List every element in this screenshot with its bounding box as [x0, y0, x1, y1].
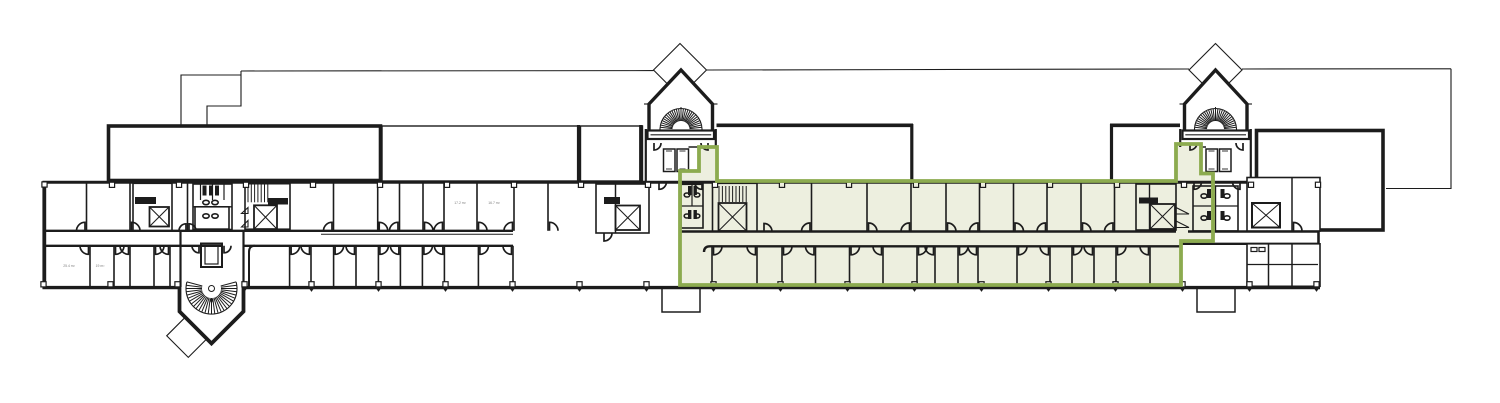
svg-text:16.7 m²: 16.7 m² [488, 201, 500, 205]
svg-text:17.2 m²: 17.2 m² [454, 201, 466, 205]
svg-text:19 m²: 19 m² [96, 264, 106, 268]
svg-text:25.4 m²: 25.4 m² [63, 264, 75, 268]
